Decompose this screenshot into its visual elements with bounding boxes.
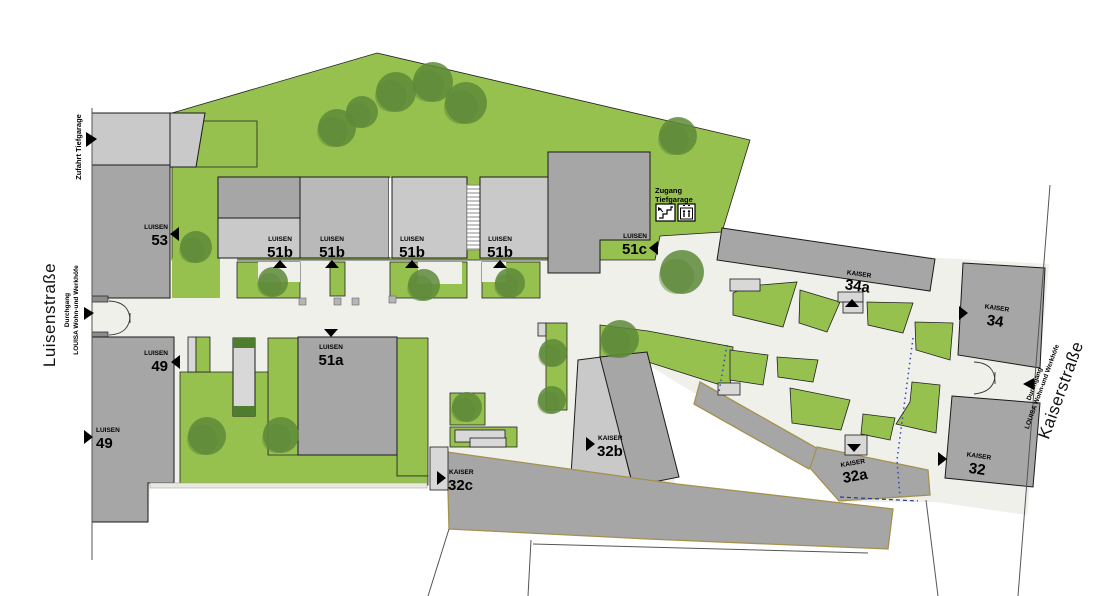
planter-edge — [188, 337, 196, 372]
building-label-prefix: LUISEN — [144, 350, 168, 357]
bollard — [299, 298, 306, 305]
passage-line1: Durchgang — [64, 293, 71, 327]
label-group-34a: KAISER 34a — [844, 269, 873, 296]
planter-green — [196, 337, 210, 372]
garage-access-text: Zufahrt Tiefgarage — [74, 114, 83, 180]
building-label-number: 51a — [318, 352, 344, 369]
building-label-prefix: LUISEN — [400, 236, 424, 243]
building-label-number: 34a — [844, 276, 872, 296]
building-label-number: 51c — [622, 241, 647, 258]
building-label-prefix: LUISEN — [144, 224, 168, 231]
bollard — [334, 298, 341, 305]
stairs-strip — [467, 185, 480, 250]
building-label-prefix: LUISEN — [96, 427, 120, 434]
passage-stub — [92, 296, 108, 302]
bollard — [352, 298, 359, 305]
building-label-prefix: LUISEN — [268, 236, 292, 243]
building-kaiser-32c-entry — [430, 447, 448, 490]
building-label-number: 49 — [96, 435, 113, 452]
building-label-number: 53 — [151, 232, 168, 249]
building-label-prefix: KAISER — [449, 469, 474, 476]
garage-ramp-area — [92, 113, 170, 165]
building-label-number: 32 — [968, 460, 987, 479]
planter-edge — [538, 323, 546, 336]
small-building — [470, 438, 506, 447]
building-label-number: 32c — [448, 477, 473, 494]
building-label-number: 49 — [151, 358, 168, 375]
elevator-icon — [678, 204, 695, 221]
property-line — [528, 540, 531, 596]
property-line — [428, 529, 449, 596]
street-label-luisenstrasse: Luisenstraße — [40, 263, 59, 367]
site-plan: LUISEN 53 LUISEN 49 LUISEN 49 LUISEN 51b… — [0, 0, 1118, 596]
plaza-wedge — [730, 350, 768, 385]
building-label-prefix: KAISER — [598, 435, 623, 442]
building-label-number: 32b — [597, 443, 623, 460]
planter-cap — [233, 338, 255, 348]
garage-entry-label: Tiefgarage — [655, 195, 693, 204]
courtyard-green — [397, 338, 428, 476]
steps — [730, 279, 760, 291]
passage-label-left: Durchgang LOUISA Wohn-und Werkhöfe — [64, 265, 94, 355]
site-plan-svg: LUISEN 53 LUISEN 49 LUISEN 49 LUISEN 51b… — [0, 0, 1118, 596]
courtyard-green — [172, 258, 220, 298]
stairs-icon — [656, 204, 675, 221]
passage-line2: LOUISA Wohn-und Werkhöfe — [73, 265, 80, 355]
building-label-prefix: LUISEN — [488, 236, 512, 243]
building-label-prefix: LUISEN — [623, 233, 647, 240]
building-kaiser-32 — [945, 396, 1040, 487]
planter-cap — [233, 406, 255, 416]
building-luisen-51a — [298, 337, 397, 455]
garage-entry-label: Zugang — [655, 186, 682, 195]
bollard — [389, 296, 396, 303]
building-label-number: 51b — [487, 244, 513, 261]
planter — [233, 338, 255, 416]
sidewalk — [150, 483, 427, 488]
property-line — [926, 500, 938, 596]
steps — [718, 383, 740, 395]
building-label-number: 34 — [986, 312, 1006, 331]
building-label-prefix: LUISEN — [319, 344, 343, 351]
building-label-prefix: LUISEN — [320, 236, 344, 243]
building-luisen-51b-1 — [218, 177, 300, 218]
building-label-number: 51b — [399, 244, 425, 261]
building-label-number: 51b — [267, 244, 293, 261]
building-label-number: 51b — [319, 244, 345, 261]
